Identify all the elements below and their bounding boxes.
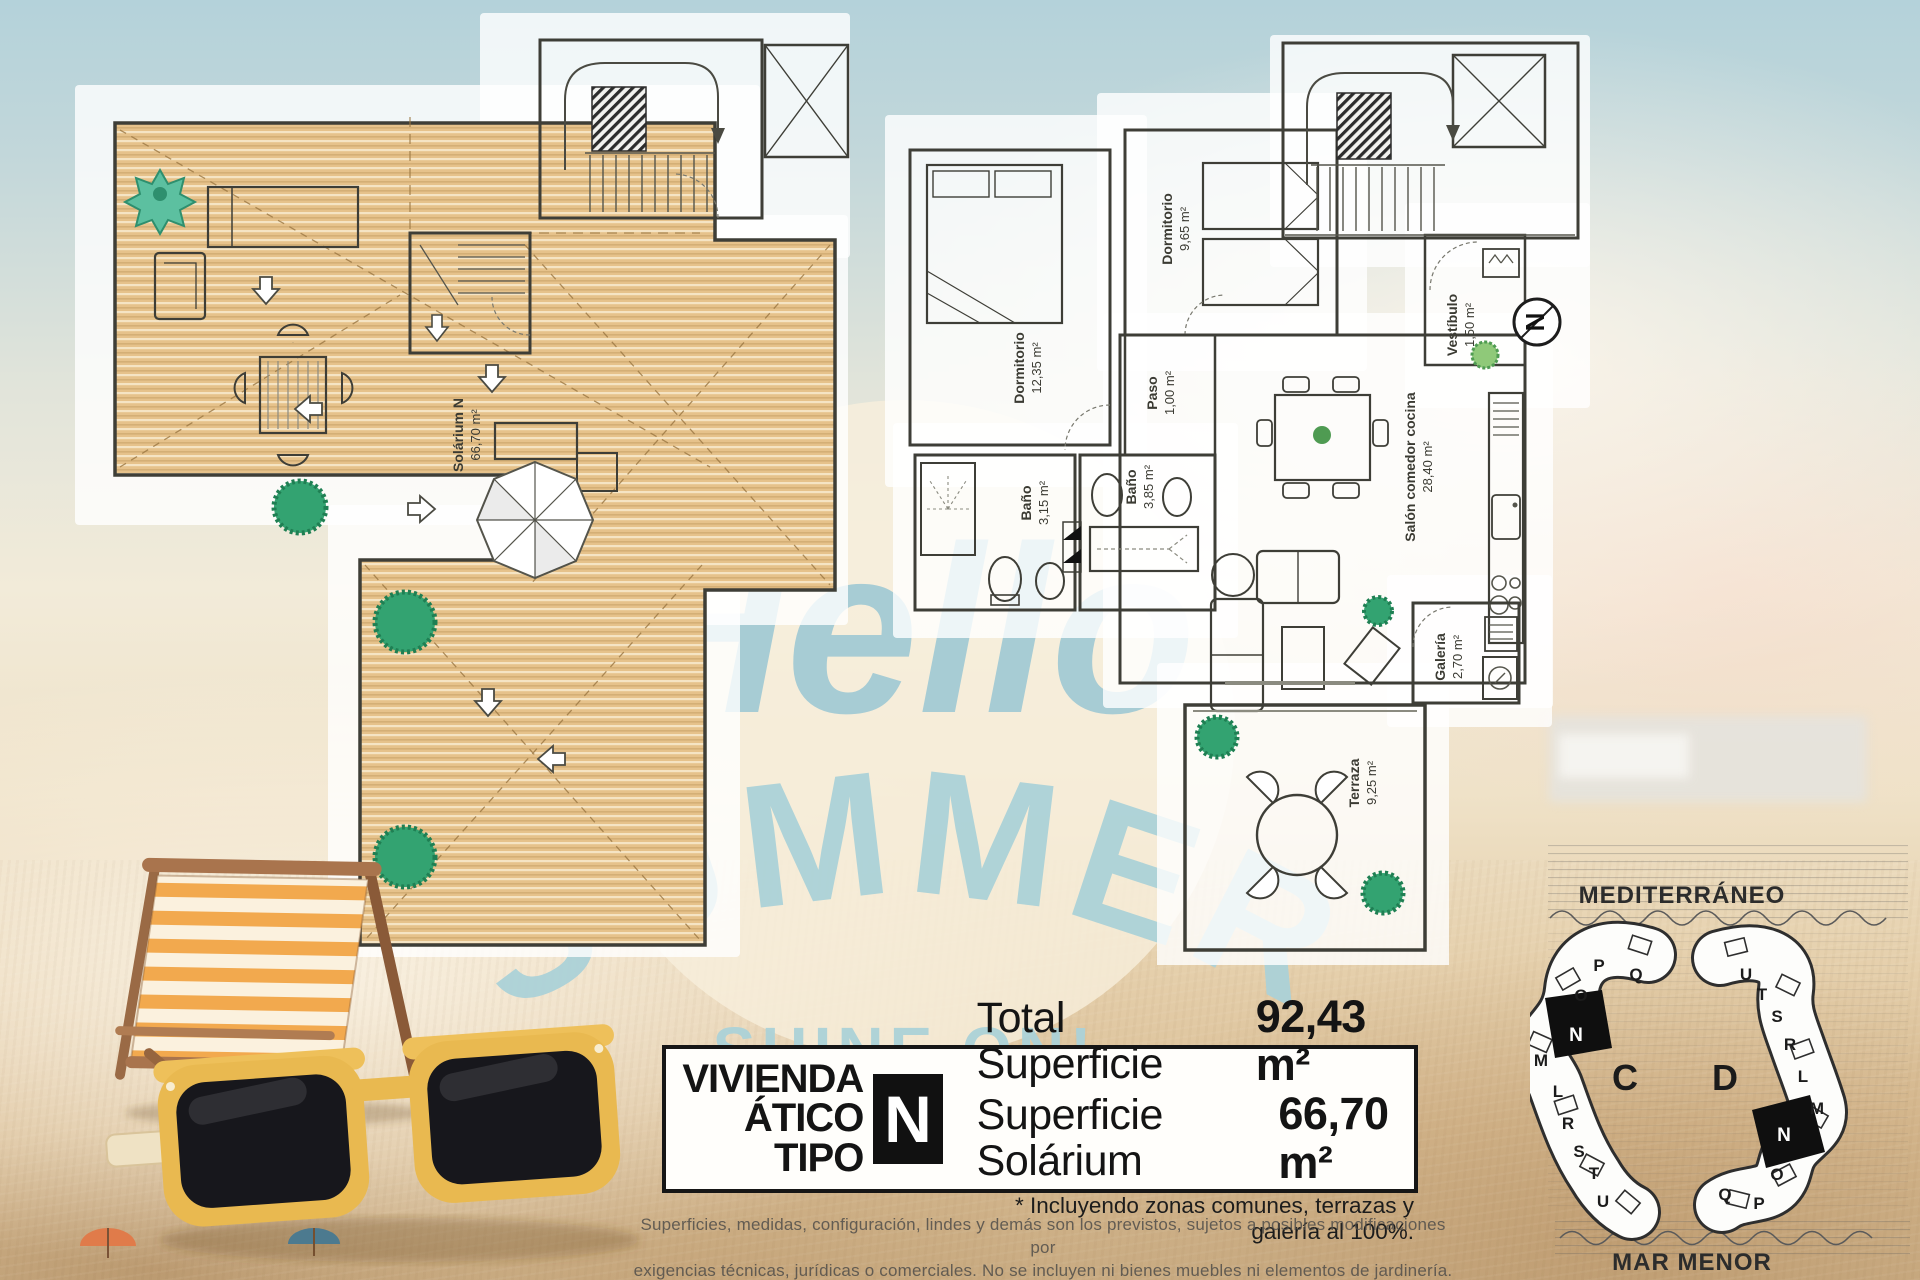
shaft-hatch	[1337, 93, 1391, 159]
block-c-label: C	[1612, 1057, 1638, 1098]
disclaimer-line1: Superficies, medidas, configuración, lin…	[628, 1214, 1458, 1260]
svg-text:1,00 m²: 1,00 m²	[1162, 370, 1177, 415]
svg-text:Q: Q	[1718, 1185, 1731, 1204]
svg-text:Solárium N: Solárium N	[450, 398, 466, 472]
svg-text:28,40 m²: 28,40 m²	[1420, 441, 1435, 493]
svg-text:1,50 m²: 1,50 m²	[1462, 302, 1477, 347]
solarium-surface-value: 66,70 m²	[1278, 1090, 1414, 1187]
svg-text:Baño: Baño	[1018, 486, 1034, 521]
sea-label-mediterraneo: MEDITERRÁNEO	[1579, 881, 1786, 909]
svg-text:Dormitorio: Dormitorio	[1159, 193, 1175, 265]
block-d-label: D	[1712, 1057, 1738, 1098]
unit-type-badge: N	[873, 1074, 942, 1164]
plant-icon	[1472, 342, 1498, 368]
svg-text:3,15 m²: 3,15 m²	[1036, 480, 1051, 525]
plan-backplate	[885, 35, 1590, 965]
plant-icon	[125, 170, 195, 234]
svg-text:M: M	[1810, 1099, 1824, 1118]
plant-icon	[1364, 597, 1392, 625]
sunglasses-image	[100, 1000, 660, 1280]
unit-title: VIVIENDA ÁTICO TIPO	[680, 1060, 863, 1178]
unit-title-line2: ÁTICO TIPO	[680, 1099, 863, 1177]
legal-disclaimer: Superficies, medidas, configuración, lin…	[628, 1214, 1458, 1280]
parasol-icon	[477, 462, 593, 578]
svg-text:9,25 m²: 9,25 m²	[1364, 760, 1379, 805]
svg-text:L: L	[1553, 1082, 1563, 1101]
svg-text:12,35 m²: 12,35 m²	[1029, 342, 1044, 394]
unit-title-line1: VIVIENDA	[680, 1060, 863, 1099]
svg-text:N: N	[1520, 313, 1550, 332]
svg-text:R: R	[1562, 1114, 1574, 1133]
disclaimer-line2: exigencias técnicas, jurídicas o comerci…	[628, 1260, 1458, 1280]
solarium-surface-label: Superficie Solárium	[977, 1092, 1257, 1185]
svg-text:N: N	[1777, 1125, 1791, 1146]
svg-text:O: O	[1574, 986, 1587, 1005]
svg-text:U: U	[1597, 1192, 1609, 1211]
site-location-plan: MEDITERRÁNEO P Q O N M L R S T	[1530, 690, 1920, 1280]
svg-text:S: S	[1573, 1142, 1584, 1161]
north-compass: N	[1514, 299, 1560, 345]
svg-text:Paso: Paso	[1144, 376, 1160, 409]
svg-text:Vestíbulo: Vestíbulo	[1444, 294, 1460, 356]
svg-text:Dormitorio: Dormitorio	[1011, 332, 1027, 404]
poster: Hello SUMMER -SHINE ON!-	[0, 0, 1920, 1280]
svg-text:T: T	[1757, 985, 1768, 1004]
svg-text:S: S	[1771, 1007, 1782, 1026]
svg-text:U: U	[1740, 965, 1752, 984]
unit-info-box: VIVIENDA ÁTICO TIPO N Total Superficie 9…	[662, 1045, 1418, 1193]
total-surface-label: Total Superficie	[977, 995, 1234, 1088]
plant-icon	[1197, 717, 1237, 757]
svg-text:P: P	[1593, 956, 1604, 975]
svg-text:T: T	[1589, 1164, 1600, 1183]
svg-text:3,85 m²: 3,85 m²	[1141, 464, 1156, 509]
svg-text:M: M	[1534, 1051, 1548, 1070]
shaft-hatch	[592, 87, 646, 151]
svg-text:Q: Q	[1629, 965, 1642, 984]
svg-text:9,65 m²: 9,65 m²	[1177, 206, 1192, 251]
svg-text:Terraza: Terraza	[1346, 758, 1362, 807]
svg-text:66,70 m²: 66,70 m²	[468, 409, 483, 461]
svg-text:Salón comedor cocina: Salón comedor cocina	[1402, 392, 1418, 542]
svg-text:Baño: Baño	[1123, 470, 1139, 505]
total-surface-value: 92,43 m²	[1256, 993, 1414, 1090]
svg-text:O: O	[1770, 1165, 1783, 1184]
sea-label-mar-menor: MAR MENOR	[1612, 1249, 1772, 1276]
svg-text:Galería: Galería	[1432, 633, 1448, 681]
svg-text:P: P	[1753, 1194, 1764, 1213]
svg-text:2,70 m²: 2,70 m²	[1450, 634, 1465, 679]
svg-text:N: N	[1569, 1025, 1583, 1046]
svg-text:R: R	[1784, 1035, 1796, 1054]
plant-icon	[1363, 873, 1403, 913]
svg-text:L: L	[1798, 1067, 1808, 1086]
